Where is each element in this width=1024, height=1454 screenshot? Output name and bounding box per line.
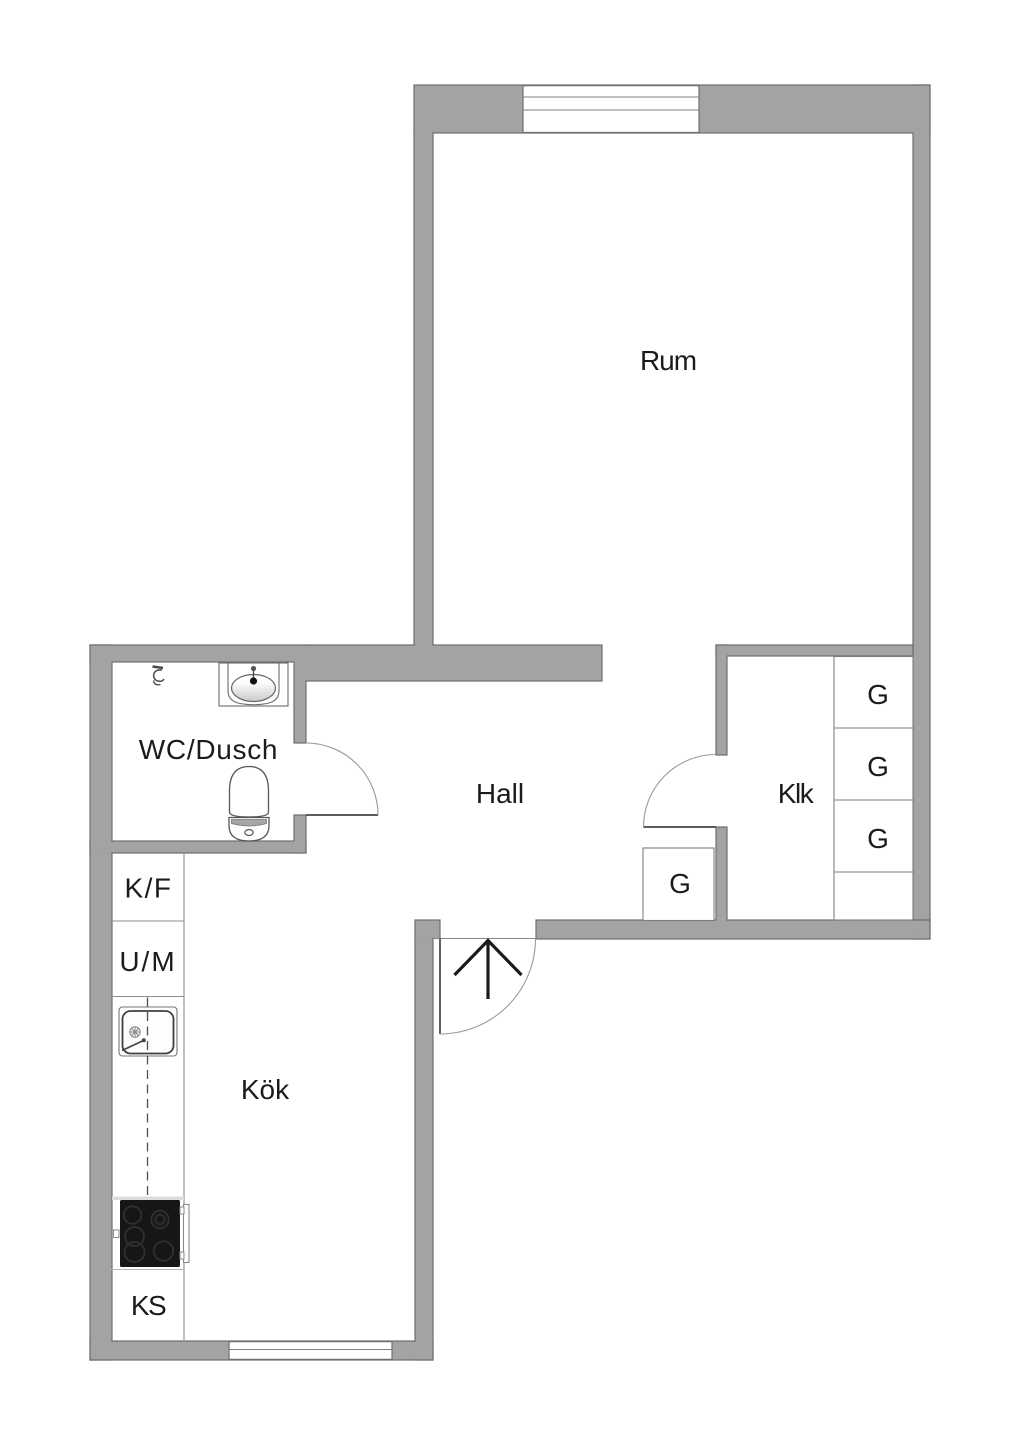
svg-text:K/F: K/F (124, 873, 172, 904)
svg-text:G: G (669, 868, 691, 899)
svg-text:Klk: Klk (778, 778, 815, 809)
svg-text:Kök: Kök (241, 1074, 290, 1105)
svg-text:G: G (867, 823, 889, 854)
svg-text:U/M: U/M (119, 946, 176, 977)
svg-text:Hall: Hall (476, 778, 524, 809)
svg-text:G: G (867, 679, 889, 710)
svg-text:WC/Dusch: WC/Dusch (139, 734, 278, 765)
svg-text:G: G (867, 751, 889, 782)
svg-text:KS: KS (131, 1290, 166, 1321)
svg-text:Rum: Rum (640, 345, 696, 376)
